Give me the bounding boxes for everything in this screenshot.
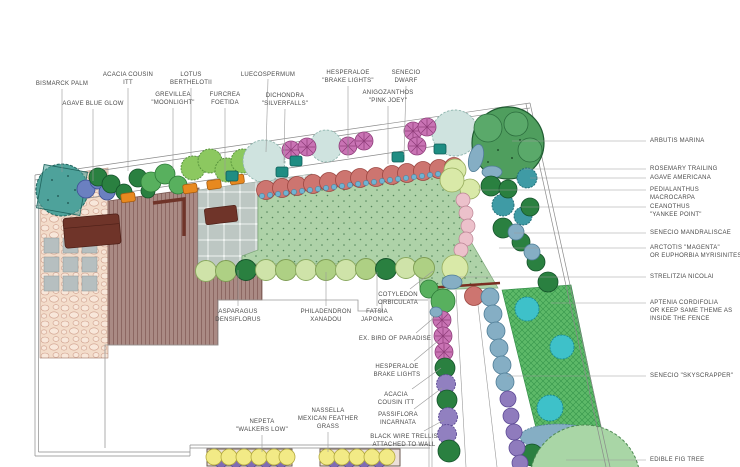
plant-label: STRELITZIA NICOLAI [650, 273, 740, 281]
plant-label: BISMARCK PALM [36, 80, 88, 88]
plant-label: ARCTOTIS "MAGENTA" OR EUPHORBIA MYRISINI… [650, 244, 740, 260]
plant-label: SENECIO "SKYSCRAPPER" [650, 372, 740, 380]
plant-label: PASSIFLORA INCARNATA [378, 411, 418, 427]
plant-label: SENECIO MANDRALISCAE [650, 229, 740, 237]
grevillea-moonlight [141, 164, 187, 194]
plant-label: FURCREA FOETIDA [210, 91, 241, 107]
plant-label: LUECOSPERMUM [241, 71, 295, 79]
shrub [440, 168, 464, 192]
plant-label: HESPERALOE BRAKE LIGHTS [374, 363, 421, 379]
hesperaloe-brake-lights [282, 118, 436, 159]
plant-label: AGAVE AMERICANA [650, 174, 740, 182]
landscape-plan-page: BISMARCK PALM AGAVE BLUE GLOW ACACIA COU… [0, 0, 740, 467]
plant-label: ANIGOZANTHOS "PINK JOEY" [362, 89, 413, 105]
plant-label: EDIBLE FIG TREE [650, 456, 740, 464]
senecio-skyscrapper [537, 395, 563, 421]
plant-label: GREVILLEA "MOONLIGHT" [151, 91, 194, 107]
plant-label: CEANOTHUS "YANKEE POINT" [650, 203, 740, 219]
plant-label: ASPARAGUS DENSIFLORUS [215, 308, 260, 324]
plant-label: FATSIA JAPONICA [361, 308, 393, 324]
outdoor-table [204, 205, 238, 225]
plant-label: NASSELLA MEXICAN FEATHER GRASS [298, 407, 358, 431]
plant-label: ROSEMARY TRAILING [650, 165, 740, 173]
plant-label: EX. BIRD OF PARADISE [359, 335, 431, 343]
plant-label: DICHONDRA "SILVERFALLS" [262, 92, 308, 108]
plant-label: ACACIA COUSIN ITT [378, 391, 415, 407]
plant-label: BLACK WIRE TRELLIS ATTACHED TO WALL [370, 433, 437, 449]
plant-label: PHILADENDRON XANADOU [301, 308, 352, 324]
plant-label: ARBUTIS MARINA [650, 137, 740, 145]
plant-label: ACACIA COUSIN ITT [103, 71, 153, 87]
outdoor-sofa [63, 214, 121, 249]
plant-label: AGAVE BLUE GLOW [62, 100, 123, 108]
plant-label: PEDIALANTHUS MACROCARPA [650, 186, 740, 202]
plant-label: NEPETA "WALKERS LOW" [236, 418, 288, 434]
senecio-skyscrapper [550, 335, 574, 359]
nassella-row [206, 449, 395, 465]
plant-label: APTENIA CORDIFOLIA OR KEEP SAME THEME AS… [650, 299, 740, 323]
senecio-skyscrapper [515, 297, 539, 321]
arbutus-marina [472, 107, 544, 179]
planter-boxes [206, 449, 400, 467]
plant-label: HESPERALOE "BRAKE LIGHTS" [322, 69, 373, 85]
plant-label: COTYLEDON ORBICULATA [378, 291, 418, 307]
plant-label: LOTUS BERTHELOTII [170, 71, 212, 87]
plant-label: SENECIO DWARF [392, 69, 421, 85]
